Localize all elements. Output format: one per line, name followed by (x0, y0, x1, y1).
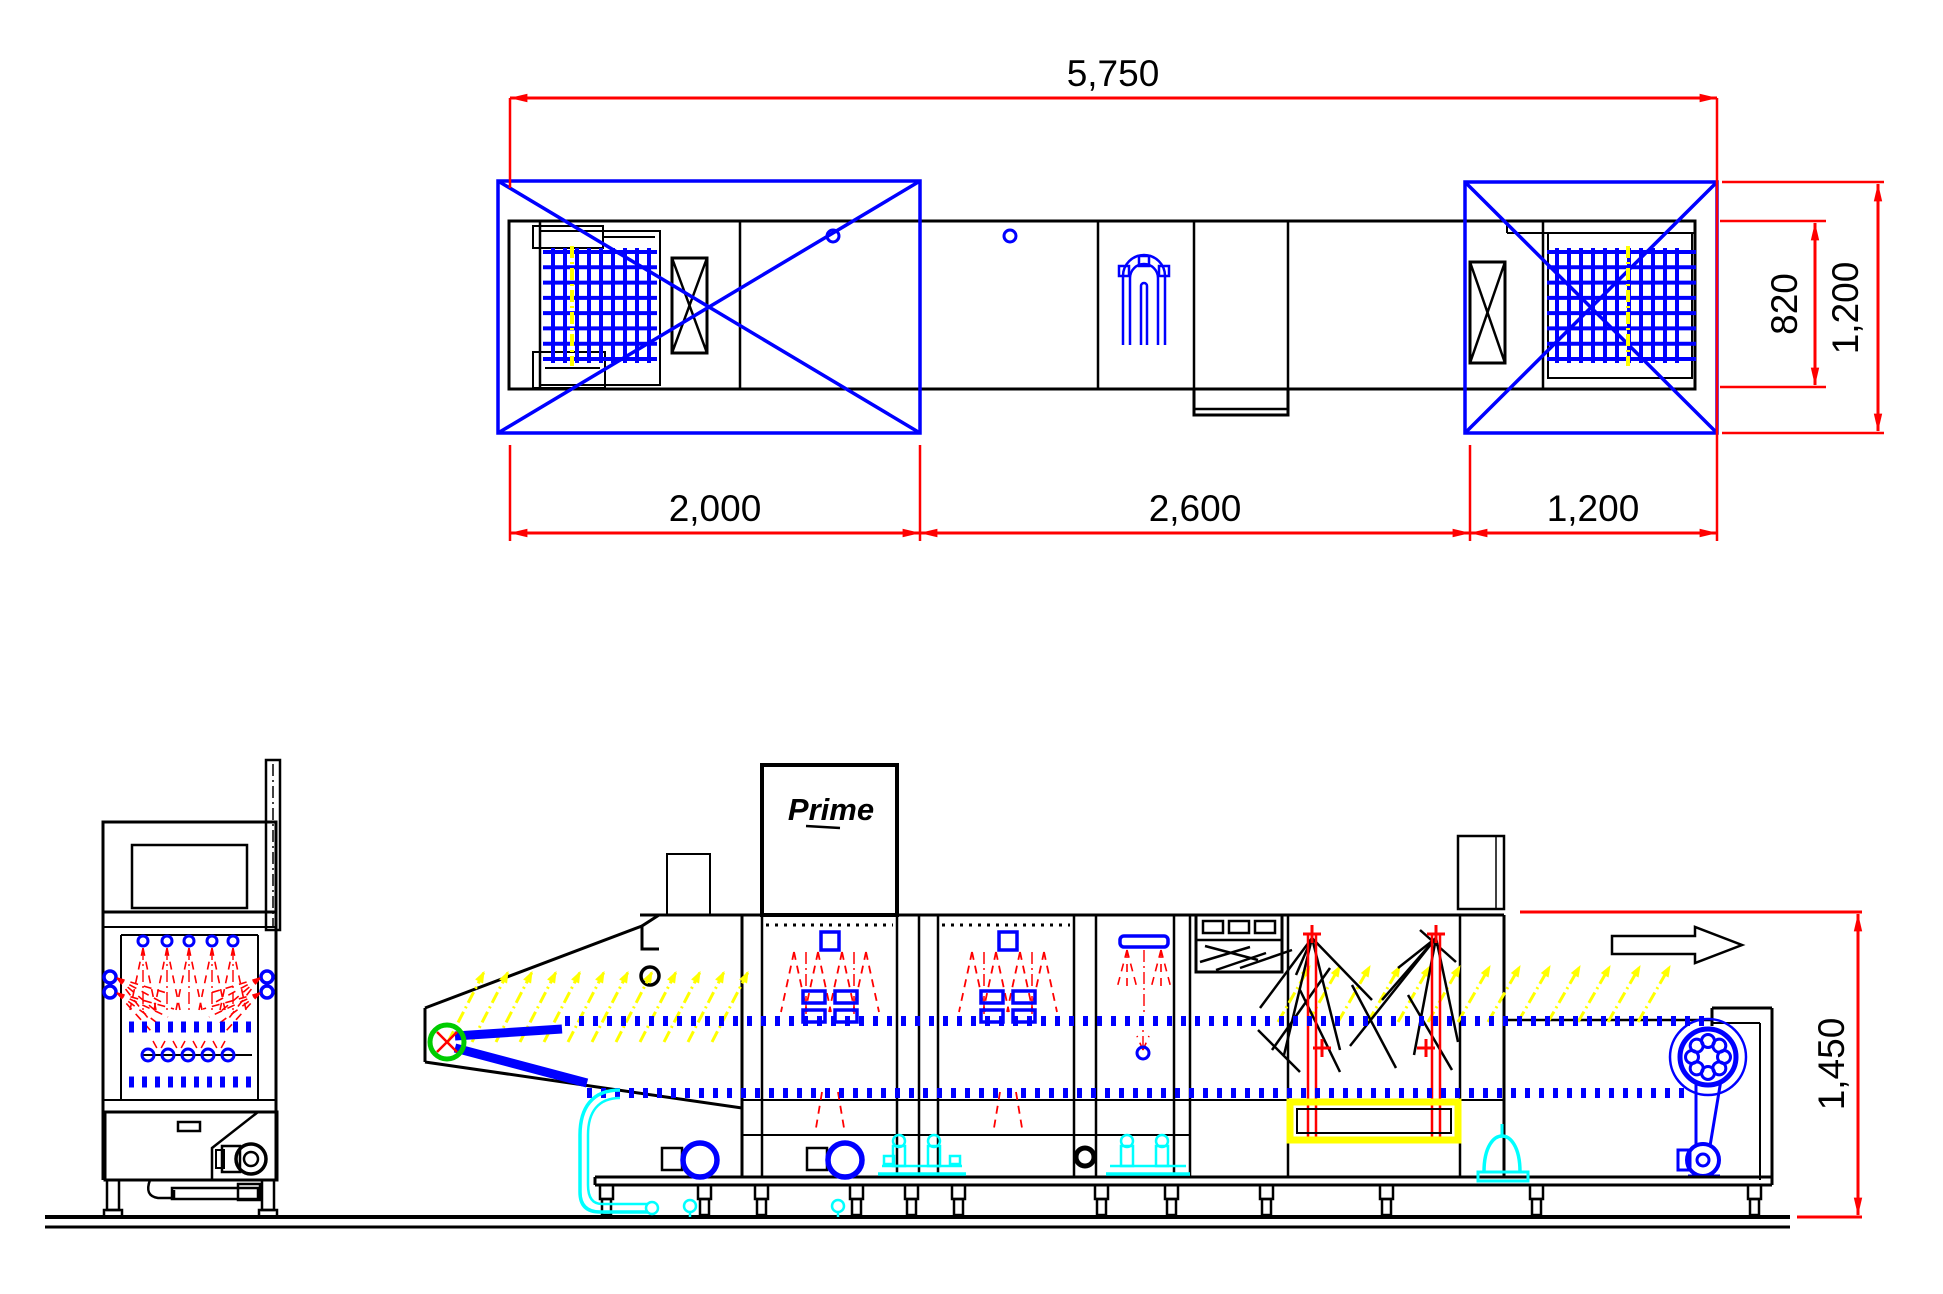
dim-module-width-1200: 1,200 (1825, 262, 1866, 355)
brand-logo: Prime (788, 792, 874, 827)
dim-overall-length: 5,750 (1067, 53, 1160, 94)
engineering-drawing: 5,750 2,000 2,600 1,200 820 1,200 Prime … (0, 0, 1943, 1294)
dim-belt-width-820: 820 (1764, 273, 1805, 335)
dim-section-1200: 1,200 (1547, 488, 1640, 529)
dim-section-2000: 2,000 (669, 488, 762, 529)
dim-section-2600: 2,600 (1149, 488, 1242, 529)
cad-drawing-canvas: 5,750 2,000 2,600 1,200 820 1,200 Prime … (0, 0, 1943, 1294)
dim-height-1450: 1,450 (1811, 1018, 1852, 1111)
